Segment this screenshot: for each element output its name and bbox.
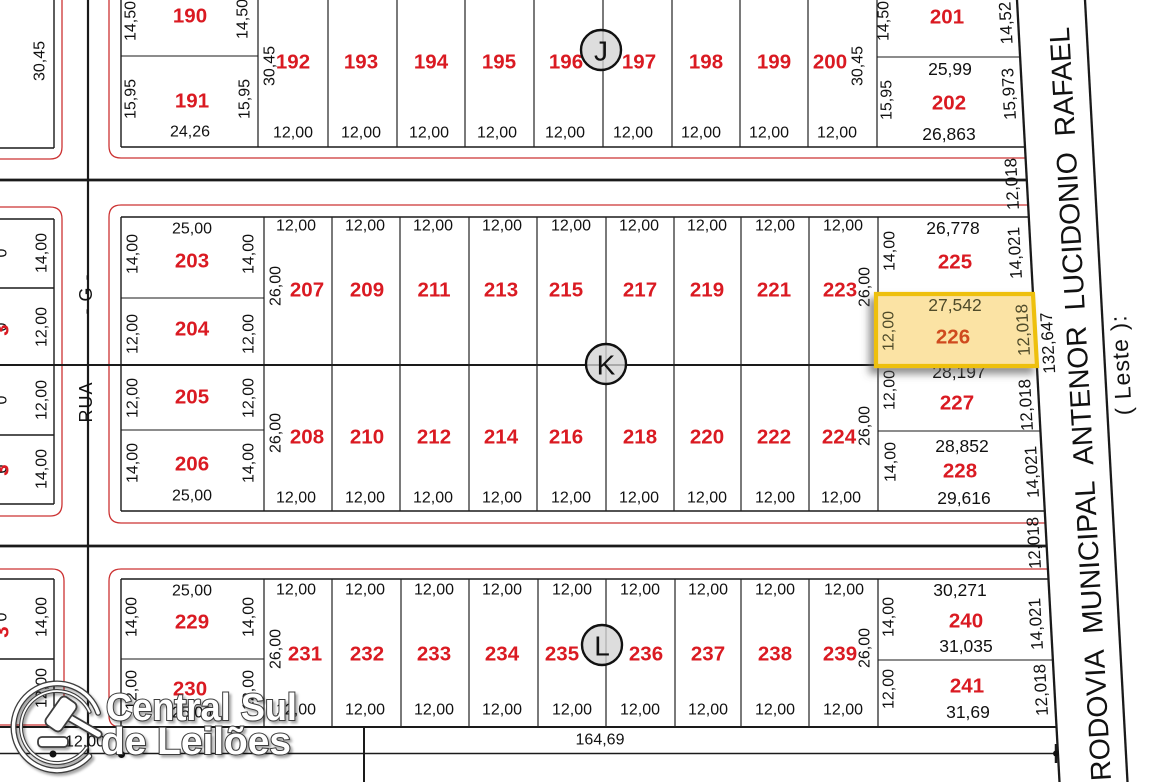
svg-text:12,00: 12,00: [273, 125, 313, 142]
svg-text:25,99: 25,99: [928, 59, 972, 79]
svg-text:216: 216: [549, 426, 583, 449]
svg-text:12,00: 12,00: [345, 490, 385, 507]
svg-text:12,00: 12,00: [755, 582, 795, 599]
svg-text:3: 3: [0, 324, 14, 335]
svg-text:223: 223: [823, 279, 857, 302]
svg-text:K: K: [597, 350, 616, 381]
svg-text:232: 232: [350, 643, 384, 666]
svg-text:192: 192: [276, 51, 310, 74]
svg-text:12,00: 12,00: [414, 702, 454, 719]
svg-text:190: 190: [173, 5, 207, 28]
svg-text:24,26: 24,26: [170, 124, 210, 141]
svg-text:228: 228: [943, 460, 977, 483]
svg-text:12,018: 12,018: [1015, 379, 1037, 432]
svg-text:12,00: 12,00: [414, 582, 454, 599]
svg-text:225: 225: [938, 251, 972, 274]
svg-text:212: 212: [417, 426, 451, 449]
svg-text:132,647: 132,647: [1037, 312, 1059, 374]
svg-text:12,00: 12,00: [823, 218, 863, 235]
svg-text:15,95: 15,95: [879, 80, 896, 120]
svg-text:12,018: 12,018: [1001, 158, 1023, 211]
svg-text:de Leilões: de Leilões: [101, 721, 291, 763]
svg-text:30,45: 30,45: [850, 46, 867, 86]
svg-text:12,00: 12,00: [755, 490, 795, 507]
svg-text:236: 236: [629, 643, 663, 666]
svg-text:207: 207: [290, 279, 324, 302]
svg-text:12,00: 12,00: [823, 702, 863, 719]
svg-text:14,00: 14,00: [125, 234, 142, 274]
svg-text:27,542: 27,542: [928, 295, 982, 315]
svg-text:12,00: 12,00: [413, 218, 453, 235]
svg-text:14,00: 14,00: [883, 442, 900, 482]
svg-text:12,00: 12,00: [687, 218, 727, 235]
svg-text:195: 195: [482, 51, 516, 74]
svg-text:14,021: 14,021: [1021, 446, 1043, 499]
svg-text:234: 234: [485, 643, 520, 666]
svg-text:26,00: 26,00: [857, 406, 874, 446]
svg-text:14,00: 14,00: [34, 597, 51, 637]
svg-text:12,00: 12,00: [409, 125, 449, 142]
svg-text:12,00: 12,00: [345, 582, 385, 599]
svg-text:12,00: 12,00: [824, 582, 864, 599]
svg-text:12,00: 12,00: [681, 125, 721, 142]
svg-text:12,00: 12,00: [817, 125, 857, 142]
svg-text:J: J: [594, 36, 608, 67]
svg-text:15,973: 15,973: [998, 68, 1020, 121]
svg-text:12,00: 12,00: [552, 582, 592, 599]
svg-text:15,95: 15,95: [123, 79, 140, 119]
svg-text:12,00: 12,00: [821, 490, 861, 507]
svg-text:12,00: 12,00: [619, 490, 659, 507]
svg-text:3: 3: [0, 626, 14, 637]
svg-text:14,00: 14,00: [125, 443, 142, 483]
svg-text:210: 210: [350, 426, 384, 449]
svg-text:26,00: 26,00: [857, 267, 874, 307]
svg-text:L: L: [594, 631, 610, 662]
svg-text:12,00: 12,00: [341, 125, 381, 142]
svg-text:14,00: 14,00: [241, 597, 258, 637]
svg-text:226: 226: [936, 326, 970, 349]
svg-text:14,00: 14,00: [34, 449, 51, 489]
svg-text:12,00: 12,00: [241, 378, 258, 418]
svg-text:RUA: RUA: [76, 381, 96, 422]
svg-text:12,00: 12,00: [551, 218, 591, 235]
svg-text:204: 204: [175, 318, 210, 341]
svg-text:12,00: 12,00: [482, 218, 522, 235]
svg-text:25,00: 25,00: [172, 221, 212, 238]
svg-text:14,00: 14,00: [881, 597, 898, 637]
svg-text:209: 209: [350, 279, 384, 302]
svg-text:222: 222: [757, 426, 791, 449]
svg-text:30,271: 30,271: [933, 580, 987, 600]
svg-text:25,00: 25,00: [172, 583, 212, 600]
svg-text:12,00: 12,00: [688, 702, 728, 719]
svg-text:29,616: 29,616: [937, 488, 991, 508]
svg-text:12,00: 12,00: [882, 370, 899, 410]
svg-text:14,021: 14,021: [1004, 227, 1026, 280]
svg-text:12,00: 12,00: [881, 669, 898, 709]
svg-text:198: 198: [689, 51, 723, 74]
svg-text:196: 196: [549, 51, 583, 74]
svg-text:227: 227: [940, 392, 974, 415]
svg-text:219: 219: [690, 279, 724, 302]
svg-text:199: 199: [757, 51, 791, 74]
svg-text:12,00: 12,00: [619, 218, 659, 235]
svg-text:12,00: 12,00: [345, 218, 385, 235]
svg-text:12,00: 12,00: [34, 380, 51, 420]
svg-text:12,00: 12,00: [477, 125, 517, 142]
svg-text:240: 240: [949, 610, 983, 633]
svg-text:233: 233: [417, 643, 451, 666]
svg-text:12,00: 12,00: [620, 702, 660, 719]
svg-text:12,018: 12,018: [1023, 517, 1045, 570]
svg-text:218: 218: [623, 426, 657, 449]
svg-text:221: 221: [757, 279, 791, 302]
svg-text:193: 193: [344, 51, 378, 74]
svg-text:12,00: 12,00: [755, 702, 795, 719]
svg-text:0: 0: [0, 248, 11, 257]
svg-text:30,45: 30,45: [32, 41, 49, 81]
svg-text:191: 191: [175, 90, 209, 113]
svg-text:26,00: 26,00: [268, 629, 285, 669]
svg-text:3: 3: [0, 464, 14, 475]
svg-text:14,00: 14,00: [241, 443, 258, 483]
svg-text:213: 213: [484, 279, 518, 302]
svg-text:12,00: 12,00: [482, 702, 522, 719]
svg-text:- G -: - G -: [76, 274, 96, 315]
svg-text:12,00: 12,00: [551, 490, 591, 507]
svg-text:12,00: 12,00: [125, 378, 142, 418]
svg-text:14,00: 14,00: [34, 233, 51, 273]
svg-text:14,50: 14,50: [235, 0, 252, 39]
svg-text:205: 205: [175, 386, 209, 409]
svg-text:12,00: 12,00: [345, 702, 385, 719]
svg-text:0: 0: [0, 612, 11, 621]
svg-text:214: 214: [484, 426, 519, 449]
svg-text:12,00: 12,00: [552, 702, 592, 719]
svg-text:12,00: 12,00: [241, 314, 258, 354]
svg-text:217: 217: [623, 279, 657, 302]
svg-text:28,852: 28,852: [935, 436, 989, 456]
svg-text:200: 200: [813, 51, 847, 74]
svg-text:239: 239: [823, 643, 857, 666]
svg-text:220: 220: [690, 426, 724, 449]
svg-text:14,00: 14,00: [124, 597, 141, 637]
svg-text:26,00: 26,00: [268, 413, 285, 453]
svg-text:12,00: 12,00: [413, 490, 453, 507]
svg-text:237: 237: [691, 643, 725, 666]
svg-text:12,018: 12,018: [1030, 664, 1052, 717]
svg-text:224: 224: [822, 426, 857, 449]
svg-text:12,00: 12,00: [482, 582, 522, 599]
svg-text:26,00: 26,00: [268, 266, 285, 306]
svg-text:12,018: 12,018: [1012, 304, 1034, 357]
svg-text:231: 231: [288, 643, 322, 666]
svg-text:211: 211: [417, 279, 450, 302]
svg-text:12,00: 12,00: [545, 125, 585, 142]
svg-text:12,00: 12,00: [613, 125, 653, 142]
svg-text:197: 197: [622, 51, 656, 74]
svg-text:235: 235: [545, 643, 579, 666]
svg-text:14,50: 14,50: [876, 1, 893, 41]
svg-text:201: 201: [930, 6, 964, 29]
svg-text:12,00: 12,00: [620, 582, 660, 599]
svg-text:12,00: 12,00: [482, 490, 522, 507]
svg-text:12,00: 12,00: [755, 218, 795, 235]
svg-text:202: 202: [932, 92, 966, 115]
svg-text:31,035: 31,035: [939, 636, 993, 656]
svg-text:15,95: 15,95: [237, 79, 254, 119]
svg-text:12,00: 12,00: [687, 490, 727, 507]
svg-text:12,00: 12,00: [749, 125, 789, 142]
svg-text:241: 241: [950, 675, 984, 698]
svg-text:14,52: 14,52: [995, 1, 1016, 45]
svg-text:31,69: 31,69: [946, 702, 990, 722]
svg-text:208: 208: [290, 426, 324, 449]
svg-text:12,00: 12,00: [881, 311, 898, 351]
svg-text:12,00: 12,00: [688, 582, 728, 599]
svg-text:0: 0: [0, 395, 11, 404]
svg-text:14,021: 14,021: [1025, 598, 1047, 651]
svg-text:203: 203: [175, 250, 209, 273]
svg-text:12,00: 12,00: [276, 582, 316, 599]
svg-text:12,00: 12,00: [276, 490, 316, 507]
svg-text:25,00: 25,00: [172, 488, 212, 505]
svg-text:194: 194: [414, 51, 449, 74]
svg-text:26,863: 26,863: [922, 124, 976, 144]
svg-text:215: 215: [549, 279, 583, 302]
svg-text:12,00: 12,00: [276, 218, 316, 235]
svg-text:164,69: 164,69: [576, 732, 625, 749]
svg-text:14,00: 14,00: [882, 231, 899, 271]
svg-text:238: 238: [758, 643, 792, 666]
svg-text:26,778: 26,778: [926, 218, 980, 238]
svg-text:14,50: 14,50: [123, 1, 140, 41]
svg-text:14,00: 14,00: [241, 234, 258, 274]
svg-text:12,00: 12,00: [34, 307, 51, 347]
svg-text:26,00: 26,00: [857, 628, 874, 668]
svg-text:229: 229: [175, 611, 209, 634]
svg-text:12,00: 12,00: [125, 314, 142, 354]
svg-text:206: 206: [175, 453, 209, 476]
